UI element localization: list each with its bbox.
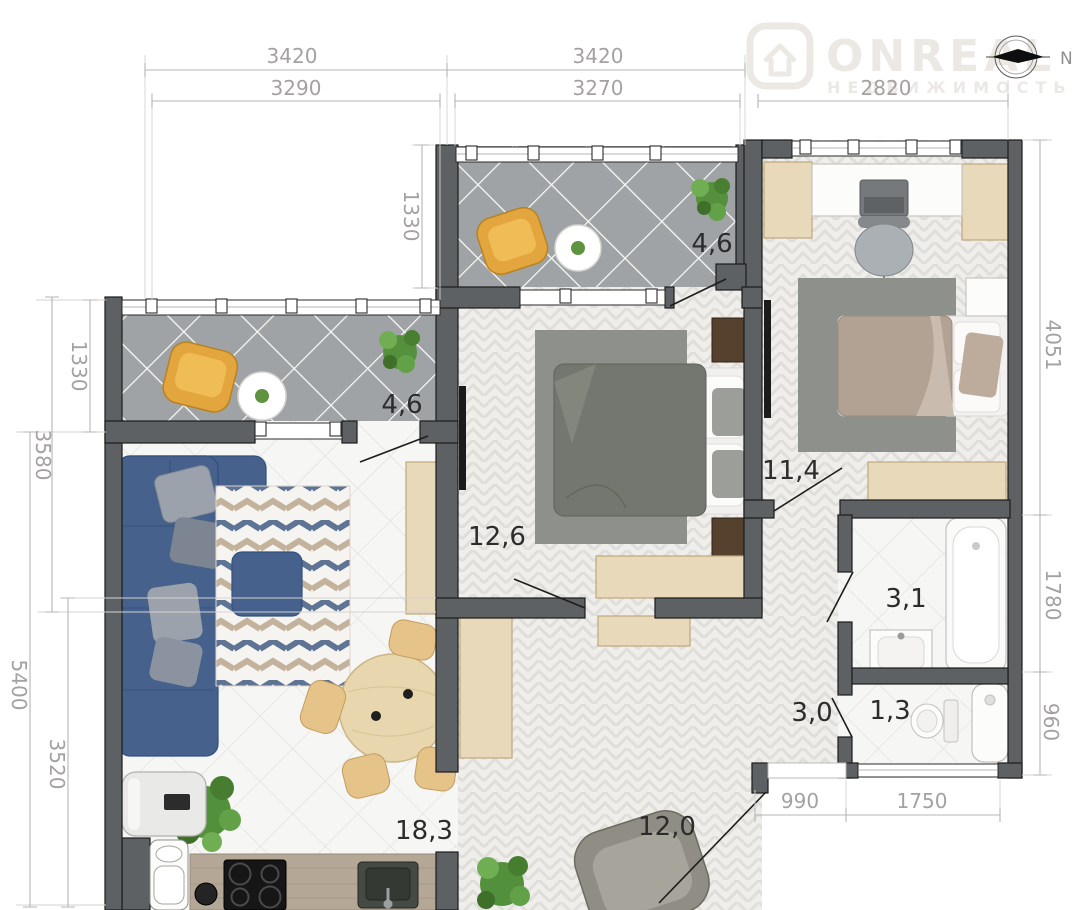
boiler [972, 684, 1008, 762]
toilet [911, 700, 958, 742]
double-bed [554, 364, 759, 516]
area-corridor: 3,0 [791, 698, 832, 728]
wall-right-center [744, 140, 762, 613]
entry-opening [768, 763, 846, 778]
dim-left-upper: 3580 [31, 430, 55, 481]
dim-balcony-top-height: 1330 [399, 191, 423, 242]
dim-left-outer: 5400 [7, 660, 31, 711]
area-bedroom-main: 12,6 [468, 522, 526, 552]
wall-bath-wc-divider [852, 668, 1008, 684]
dim-top-mid-outer: 3420 [573, 44, 624, 68]
wall-balcony-bedroom-divider [436, 287, 520, 308]
area-hallway: 12,0 [638, 812, 696, 842]
fridge [122, 772, 206, 836]
wall-bedroom-second-bottom [744, 500, 774, 518]
plant-balcony-left [379, 330, 420, 373]
kitchen-sink [358, 862, 418, 909]
dim-top-mid-inner: 3270 [573, 76, 624, 100]
wall-living-top [105, 421, 255, 443]
tv-bedroom-second [764, 300, 771, 418]
dim-right-lower: 960 [1039, 703, 1063, 741]
wall-bedroom-main-bottom [436, 598, 585, 618]
dim-right-upper: 4051 [1041, 320, 1065, 371]
dim-bottom-window: 1750 [897, 789, 948, 813]
area-kitchen-living: 18,3 [395, 816, 453, 846]
window-balcony-left [122, 300, 440, 315]
dim-top-right: 2820 [861, 76, 912, 100]
window-bedroom-second [792, 141, 962, 156]
wall-corridor-bath [838, 515, 852, 572]
window-living [255, 423, 342, 439]
compass-north-label: N [1060, 49, 1073, 69]
tv-bedroom-main [459, 386, 466, 490]
dim-top-left-outer: 3420 [267, 44, 318, 68]
dim-right-middle: 1780 [1041, 570, 1065, 621]
plant-hallway [477, 856, 530, 909]
pot [195, 883, 217, 905]
wall-left-outer [105, 297, 122, 910]
ottoman [232, 552, 302, 616]
wardrobe-right [962, 164, 1008, 240]
area-bedroom-second: 11,4 [762, 456, 820, 486]
window-wc-bottom [858, 764, 998, 777]
dim-top-left-inner: 3290 [271, 76, 322, 100]
bathtub [946, 518, 1006, 672]
shoe-cabinet [598, 616, 690, 646]
dresser-bedroom-main [596, 556, 746, 598]
single-bed [838, 316, 1008, 416]
hall-console [460, 610, 512, 758]
wall-right-outer [1008, 140, 1022, 778]
wardrobe-left [764, 162, 812, 238]
floor-plan-page: ONREAL НЕДВИЖИМОСТЬ N [0, 0, 1080, 910]
wall-center-vertical [436, 145, 458, 772]
floor-plan: ONREAL НЕДВИЖИМОСТЬ N [0, 0, 1080, 910]
tall-cabinet [150, 840, 188, 910]
laptop [860, 180, 908, 216]
area-balcony-left: 4,6 [381, 390, 422, 420]
dim-bottom-entry: 990 [781, 789, 819, 813]
area-bathroom: 3,1 [885, 584, 926, 614]
dim-left-lower-inner: 3520 [45, 739, 69, 790]
kitchen-wall-block [122, 838, 150, 910]
area-wc: 1,3 [869, 696, 910, 726]
dim-balcony-left-height: 1330 [67, 341, 91, 392]
wall-entry-stub [752, 763, 768, 793]
dining-table [339, 654, 447, 762]
wall-balcony-step [716, 264, 746, 290]
nightstand-second [966, 278, 1008, 316]
area-balcony-top: 4,6 [691, 229, 732, 259]
stove [224, 860, 286, 910]
window-bedroom-main [520, 290, 665, 305]
